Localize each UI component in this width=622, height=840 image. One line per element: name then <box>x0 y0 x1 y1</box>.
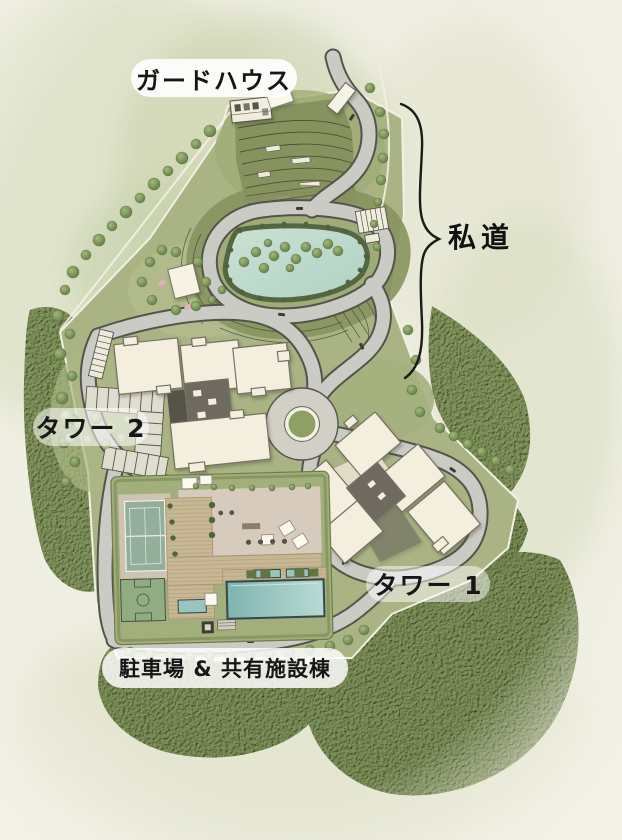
label-parking-facilities: 駐車場 & 共有施設棟 <box>102 648 348 688</box>
label-guard-house: ガードハウス <box>131 59 297 97</box>
label-tower-1: タワー 1 <box>366 566 490 602</box>
label-private-road: 私道 <box>448 216 514 256</box>
label-tower-2: タワー 2 <box>33 408 149 446</box>
site-plan-page: ガードハウス 私道 タワー 2 タワー 1 駐車場 & 共有施設棟 <box>0 0 622 840</box>
